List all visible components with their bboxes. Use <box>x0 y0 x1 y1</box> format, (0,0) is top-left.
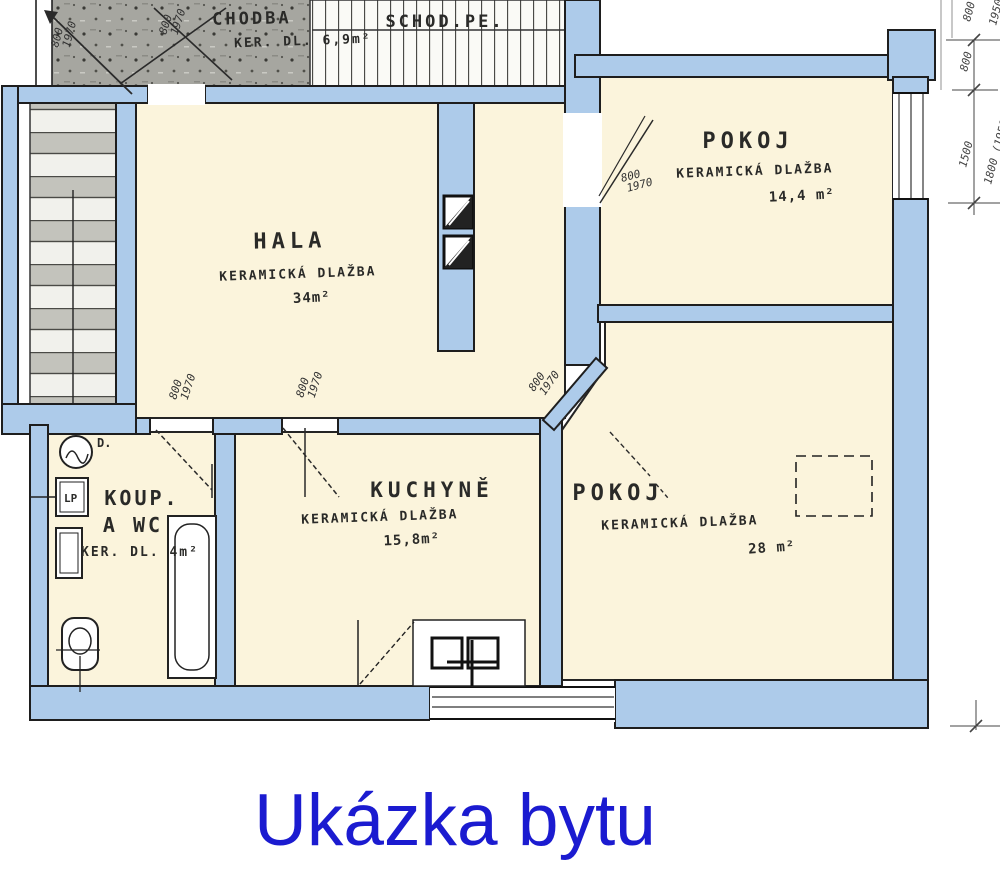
wall-hala-bottom-b <box>213 418 282 434</box>
wall-hala-bottom-a <box>136 418 150 434</box>
dim-right-1500: 1500 <box>956 139 976 168</box>
wall-top-b <box>205 86 598 103</box>
dimension-labels: 800 1500 1800 (1950) 800 1950 <box>956 0 1000 186</box>
wall-koup-kuchyne <box>215 418 235 686</box>
dim-top-1950: 1950 <box>986 0 1000 27</box>
wall-pokoj-top <box>575 55 935 77</box>
dim-right-800: 800 <box>957 50 975 73</box>
pokoj-horni-door-gap <box>563 113 602 207</box>
wall-between-pokoje <box>598 305 893 322</box>
floor-plan: CHODBA KER. DL. 6,9m² SCHOD.PE. HALA KER… <box>0 0 1000 888</box>
pokoj-dolni-area: 28 m² <box>748 538 796 557</box>
koupelna-name-2: A WC <box>103 513 163 537</box>
wall-left-outer <box>2 86 18 430</box>
wall-koup-left <box>30 425 48 686</box>
wall-right-b <box>893 199 928 728</box>
hala-name: HALA <box>253 228 326 254</box>
pokoj-horni-name: POKOJ <box>702 129 793 154</box>
koupelna-note: KER. DL. 4m² <box>81 545 199 560</box>
floor-plan-page: CHODBA KER. DL. 6,9m² SCHOD.PE. HALA KER… <box>0 0 1000 888</box>
chodba-name: CHODBA <box>212 8 292 29</box>
dimension-chain <box>941 0 1000 732</box>
entrance-door-gap <box>148 84 205 105</box>
dim-right-1800: 1800 (1950) <box>981 112 1000 186</box>
hala-floor <box>136 103 565 418</box>
hala-area: 34m² <box>293 289 332 307</box>
wall-bottom-right <box>615 680 928 728</box>
page-title: Ukázka bytu <box>254 780 656 861</box>
schodiste-name: SCHOD.PE. <box>385 12 504 32</box>
wall-stair-right <box>116 86 136 408</box>
boiler-label: LP <box>64 492 78 505</box>
koupelna-name-1: KOUP. <box>104 486 179 510</box>
kuchyne-name: KUCHYNĚ <box>370 477 494 502</box>
window-bottom-gap <box>430 686 615 722</box>
pokoj-dolni-name: POKOJ <box>572 481 663 506</box>
wall-mid-vert-lower <box>565 205 600 365</box>
wall-pillar-topright <box>888 30 935 80</box>
wall-stair-bottom <box>2 404 136 434</box>
washer-symbol <box>60 436 92 468</box>
wall-bottom-left <box>30 686 430 720</box>
washer-label: D. <box>97 436 111 450</box>
dim-top-800: 800 <box>960 0 978 23</box>
wall-top-a <box>18 86 148 103</box>
wall-kuchyne-pokoj <box>540 418 562 686</box>
kuchyne-area: 15,8m² <box>383 531 440 550</box>
wall-right-a <box>893 77 928 93</box>
wall-hala-bottom-c <box>338 418 542 434</box>
